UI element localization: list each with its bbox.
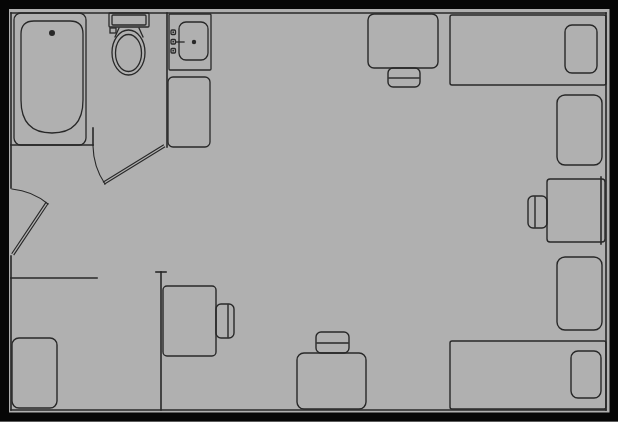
bathtub-drain: [49, 30, 55, 36]
sink-drain: [192, 40, 196, 44]
sink-knob-top-dot: [172, 31, 174, 33]
floor-background: [0, 0, 618, 422]
floor-plan: [0, 0, 618, 422]
floor-plan-svg: [0, 0, 618, 422]
sink-knob-bottom-dot: [172, 50, 174, 52]
sink-knob-middle-dot: [172, 41, 174, 43]
